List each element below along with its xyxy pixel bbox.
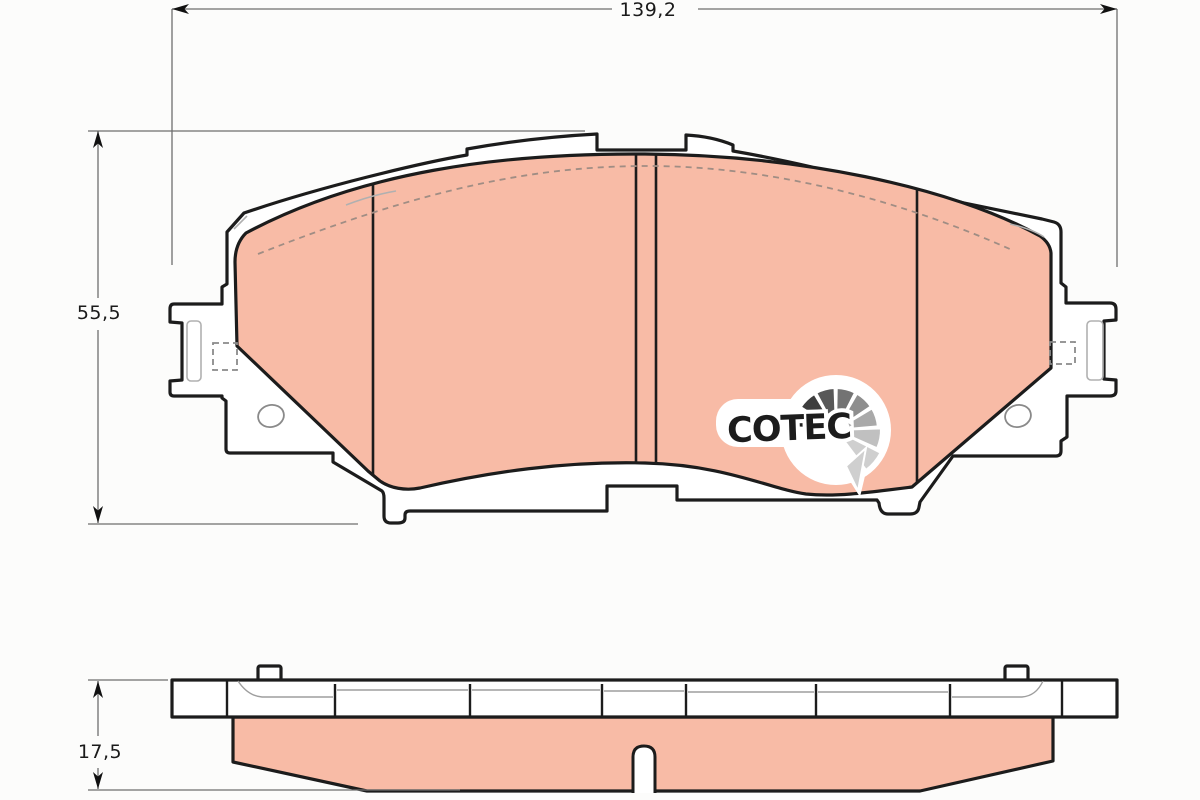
front-view: COTEC <box>170 130 1116 523</box>
side-center-slot <box>633 746 655 793</box>
side-view <box>172 666 1117 793</box>
side-backplate <box>172 680 1117 717</box>
dim-height-label: 55,5 <box>70 302 128 324</box>
drawing-svg: COTEC <box>0 0 1200 800</box>
friction-material-front <box>235 154 1051 495</box>
dim-thickness-label: 17,5 <box>70 741 130 763</box>
brake-pad-technical-drawing: COTEC <box>0 0 1200 800</box>
dim-width-label: 139,2 <box>600 0 696 20</box>
logo-text: COTEC <box>726 407 851 451</box>
